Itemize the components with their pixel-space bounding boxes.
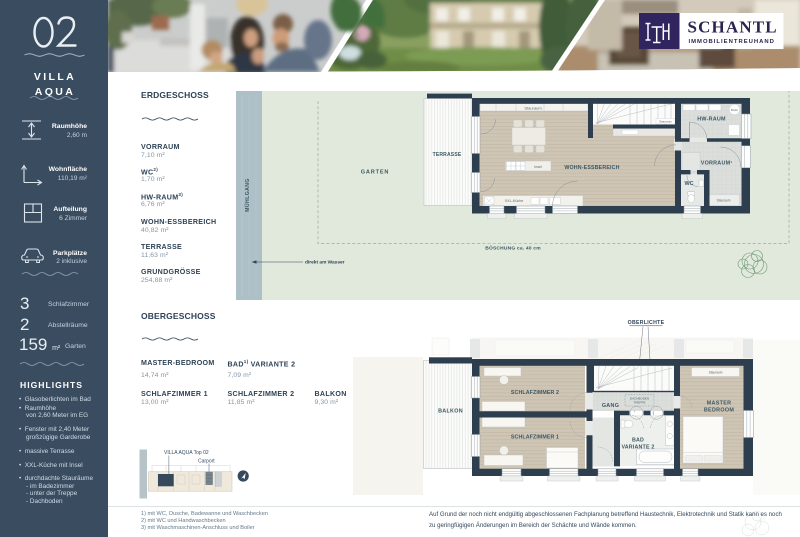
svg-text:BÖSCHUNG ca. 40 cm: BÖSCHUNG ca. 40 cm xyxy=(485,245,541,252)
svg-text:BAD: BAD xyxy=(632,438,644,444)
svg-text:IMMOBILIENTREUHAND: IMMOBILIENTREUHAND xyxy=(689,39,775,45)
svg-text:Insel: Insel xyxy=(534,165,542,169)
svg-text:BEDROOM: BEDROOM xyxy=(704,408,734,414)
svg-text:VORRAUM1: VORRAUM1 xyxy=(701,160,733,167)
svg-text:Carport: Carport xyxy=(198,459,215,465)
svg-text:TERRASSE: TERRASSE xyxy=(433,152,462,158)
svg-text:GARTEN: GARTEN xyxy=(361,170,389,176)
svg-text:Stauraum: Stauraum xyxy=(659,120,673,124)
svg-text:MÜHLGANG: MÜHLGANG xyxy=(244,178,251,212)
svg-text:Stauraum: Stauraum xyxy=(717,199,731,203)
svg-text:Stauraum: Stauraum xyxy=(524,105,542,110)
svg-text:TREPPE: TREPPE xyxy=(633,401,645,405)
svg-text:direkt am Wasser: direkt am Wasser xyxy=(305,260,345,266)
svg-text:Boiler: Boiler xyxy=(731,108,738,112)
svg-text:Ganzglasschiebetüre: Ganzglasschiebetüre xyxy=(553,209,578,213)
svg-text:GANG: GANG xyxy=(602,403,619,409)
svg-text:SCHANTL: SCHANTL xyxy=(688,17,778,36)
svg-text:BALKON: BALKON xyxy=(438,409,463,415)
svg-text:VILLA AQUA Top 02: VILLA AQUA Top 02 xyxy=(164,450,209,456)
svg-text:WC: WC xyxy=(685,181,694,187)
svg-text:HW-RAUM: HW-RAUM xyxy=(697,117,726,123)
svg-text:SCHLAFZIMMER 2: SCHLAFZIMMER 2 xyxy=(511,390,559,396)
svg-text:OBERLICHTE: OBERLICHTE xyxy=(628,320,665,326)
svg-text:XXL-Küche: XXL-Küche xyxy=(505,199,524,203)
svg-text:MASTER: MASTER xyxy=(707,401,732,407)
svg-text:Stauraum: Stauraum xyxy=(709,371,723,375)
svg-text:WOHN-ESSBEREICH: WOHN-ESSBEREICH xyxy=(564,165,619,171)
svg-text:SCHLAFZIMMER 1: SCHLAFZIMMER 1 xyxy=(511,435,559,441)
